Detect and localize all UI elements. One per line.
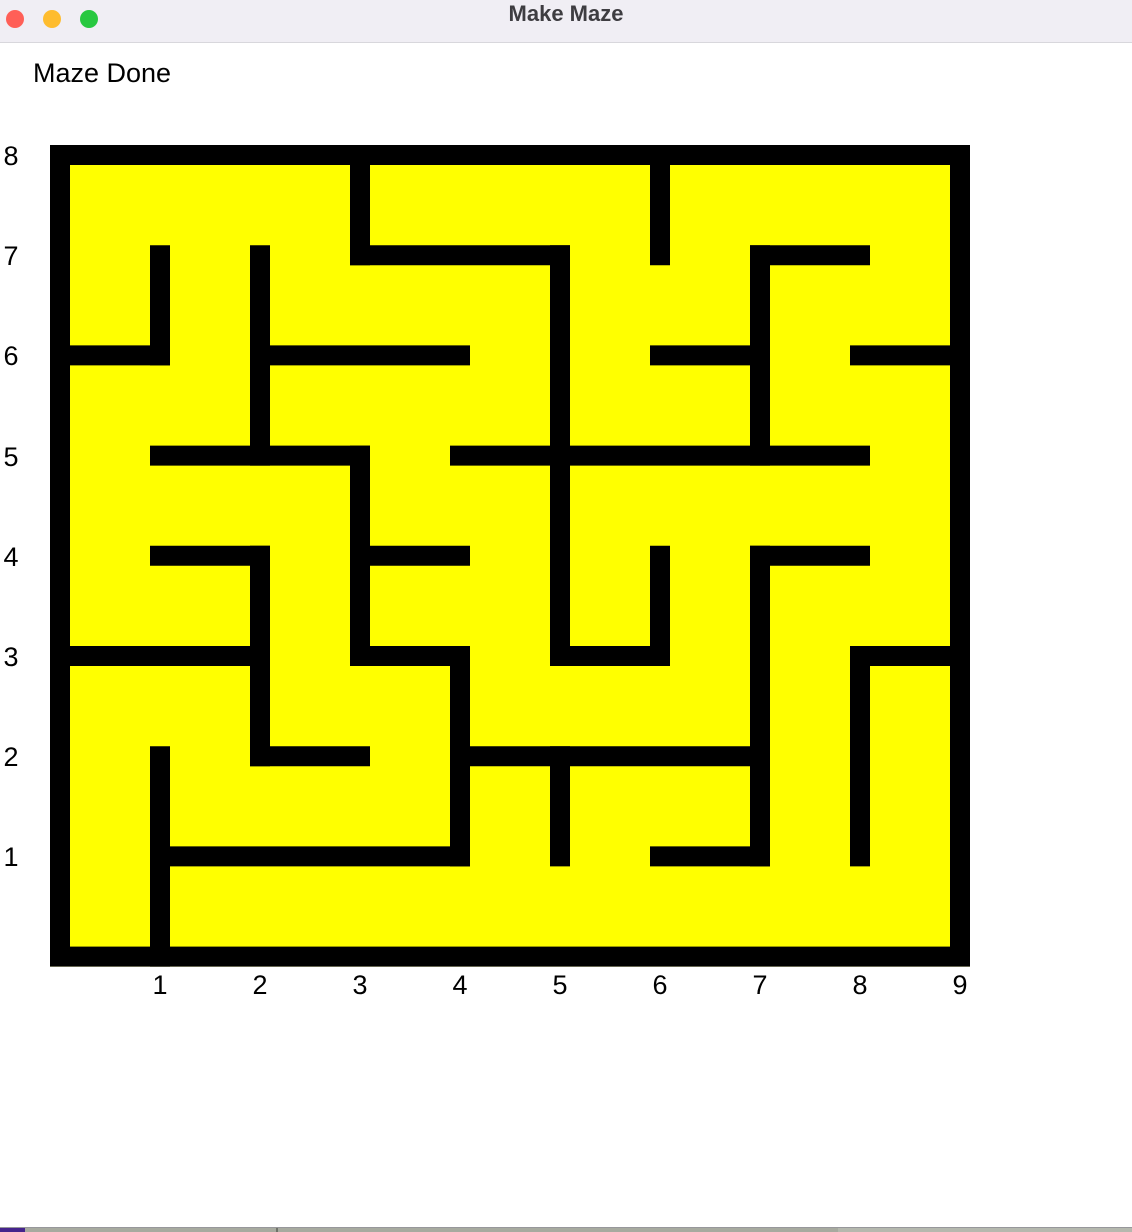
- x-axis-label: 2: [230, 970, 290, 1001]
- scrollbar-divider: [276, 1228, 278, 1232]
- y-axis-label: 2: [0, 743, 22, 771]
- x-axis-label: 5: [530, 970, 590, 1001]
- x-axis-label: 1: [130, 970, 190, 1001]
- scrollbar-track[interactable]: [838, 1228, 1132, 1232]
- horizontal-scrollbar: [0, 1227, 1132, 1232]
- maze-canvas: [0, 0, 1132, 1232]
- y-axis-label: 7: [0, 242, 22, 270]
- y-axis-label: 6: [0, 342, 22, 370]
- app-window: Make Maze Maze Done 123456789 87654321: [0, 0, 1132, 1232]
- scrollbar-thumb[interactable]: [25, 1228, 838, 1232]
- x-axis-label: 9: [930, 970, 990, 1001]
- x-axis-label: 4: [430, 970, 490, 1001]
- y-axis-label: 5: [0, 443, 22, 471]
- y-axis-label: 3: [0, 643, 22, 671]
- x-axis-label: 3: [330, 970, 390, 1001]
- y-axis-label: 4: [0, 543, 22, 571]
- scrollbar-accent: [0, 1228, 25, 1232]
- y-axis-label: 8: [0, 142, 22, 170]
- x-axis-label: 6: [630, 970, 690, 1001]
- x-axis-label: 7: [730, 970, 790, 1001]
- x-axis-label: 8: [830, 970, 890, 1001]
- y-axis-label: 1: [0, 843, 22, 871]
